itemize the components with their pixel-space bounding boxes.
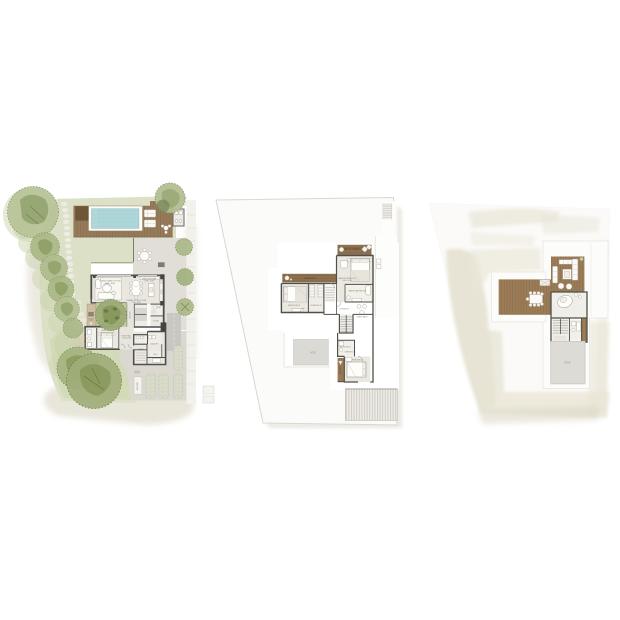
svg-text:TERRACE 02: TERRACE 02 [304, 277, 316, 280]
svg-text:MASTER TERRACE: MASTER TERRACE [343, 248, 361, 251]
svg-text:ROOF LOUNGE: ROOF LOUNGE [559, 281, 572, 283]
svg-text:4.0M x 4.0M: 4.0M x 4.0M [342, 280, 352, 282]
svg-text:GAMES LOUNGE: GAMES LOUNGE [571, 287, 586, 290]
svg-text:VOID: VOID [310, 352, 316, 355]
svg-text:DRESSING 02: DRESSING 02 [310, 305, 321, 307]
svg-text:STORE: STORE [153, 321, 158, 323]
svg-text:SWIMMING POOL: SWIMMING POOL [113, 234, 131, 236]
svg-text:2.3M x 2.0M: 2.3M x 2.0M [122, 338, 131, 340]
svg-text:GUEST BATH: GUEST BATH [357, 316, 368, 319]
svg-text:DRESSING 04: DRESSING 04 [345, 352, 356, 354]
svg-text:6.0M x 4.0M: 6.0M x 4.0M [105, 283, 115, 285]
svg-text:3.8M x 3.0M: 3.8M x 3.0M [144, 280, 154, 282]
svg-text:6.0M x 3.5M: 6.0M x 3.5M [509, 298, 519, 300]
svg-text:MASTER BATHROOM: MASTER BATHROOM [348, 290, 366, 293]
svg-text:CORRIDOR: CORRIDOR [339, 309, 349, 311]
svg-text:BEDROOM 04: BEDROOM 04 [351, 360, 362, 362]
svg-text:BEDROOM 02: BEDROOM 02 [288, 305, 300, 307]
svg-text:ROOF: ROOF [564, 363, 571, 365]
